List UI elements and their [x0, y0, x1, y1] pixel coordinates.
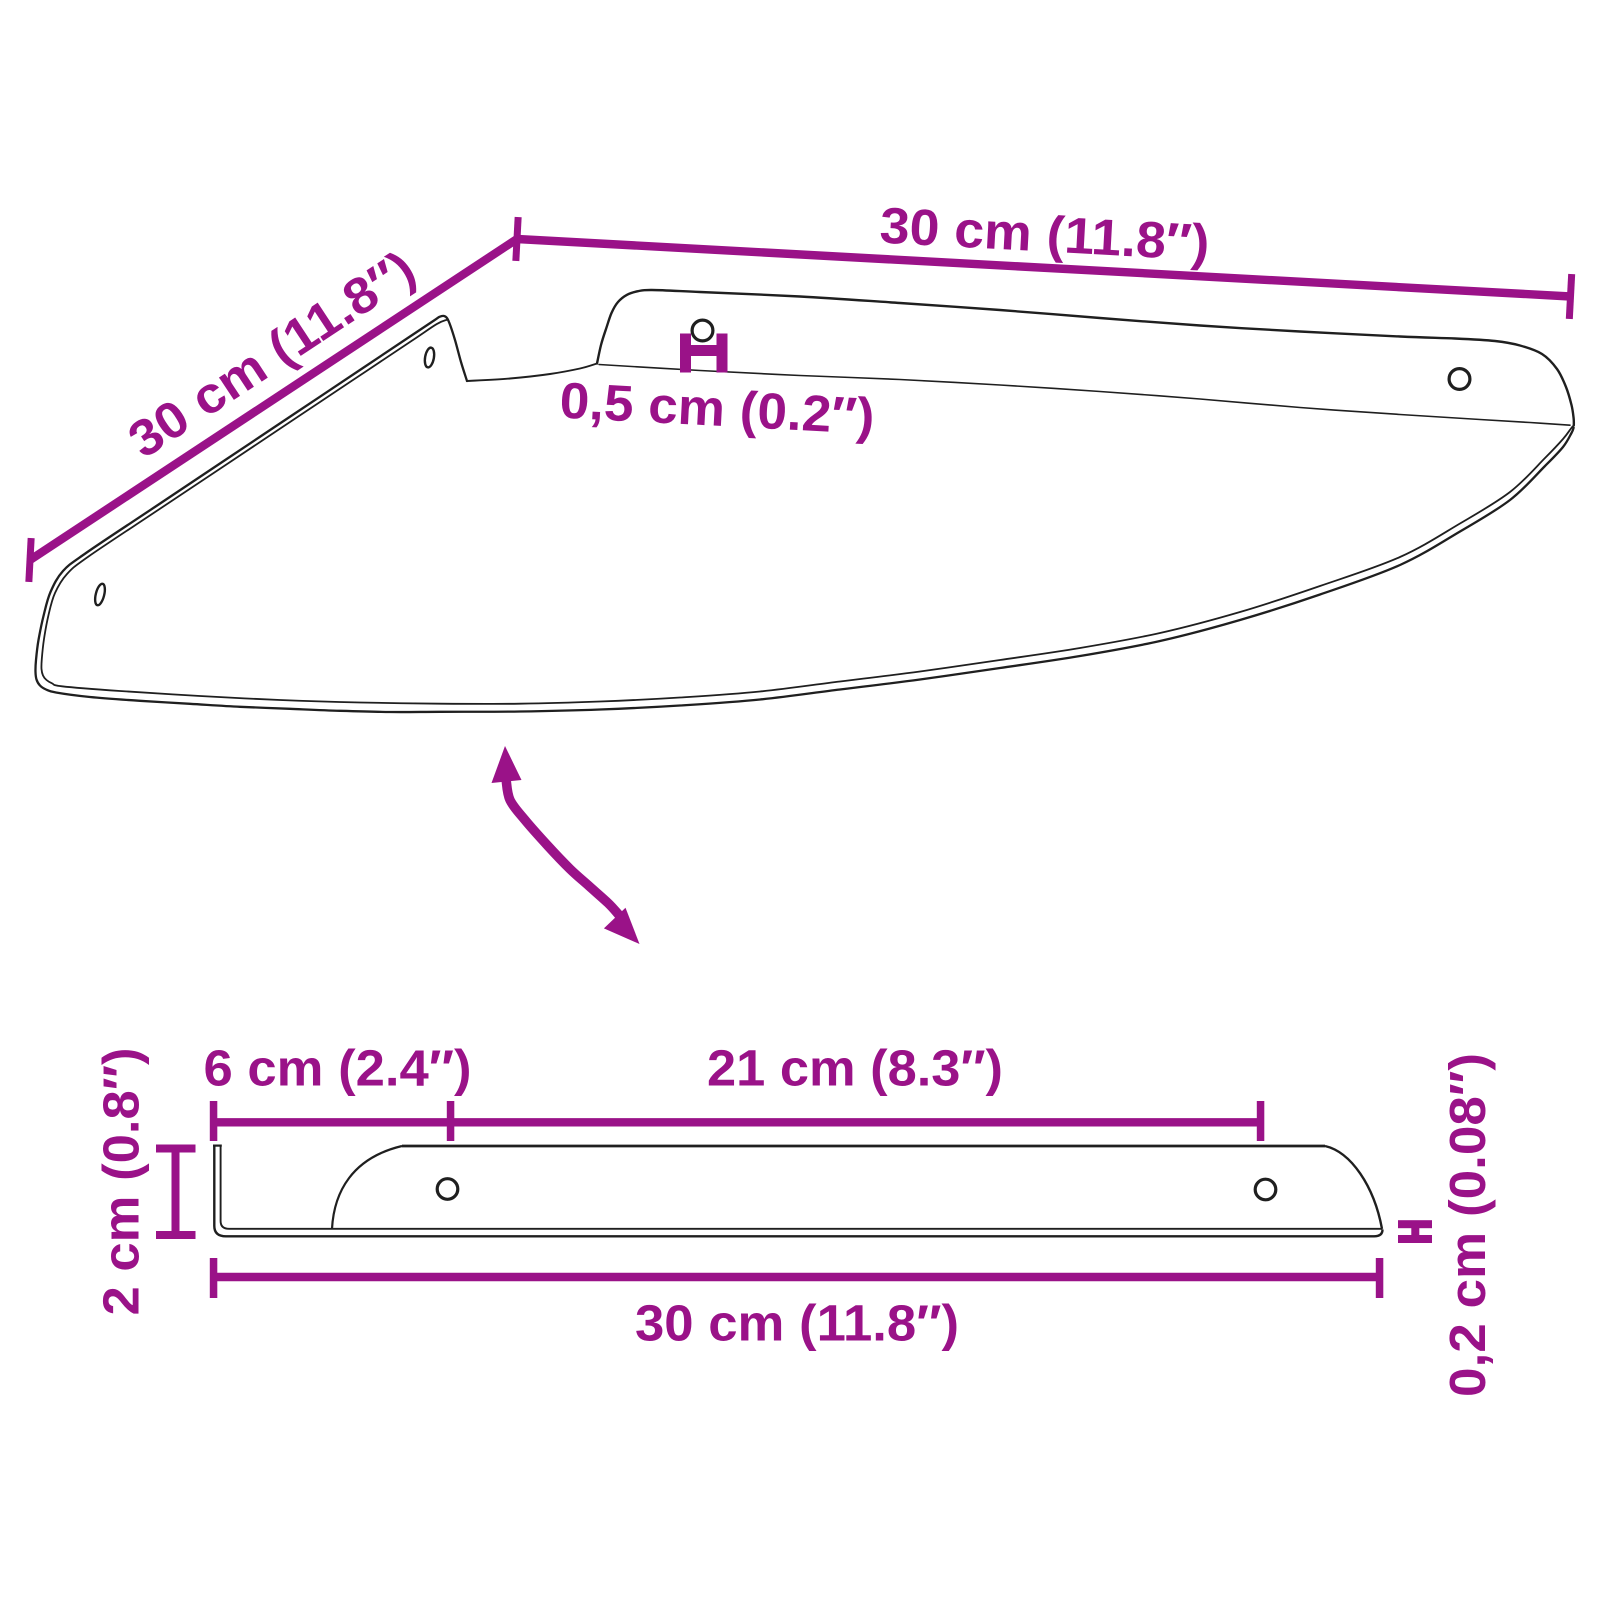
svg-text:2 cm (0.8″): 2 cm (0.8″) [93, 1048, 150, 1316]
svg-text:0,2 cm (0.08″): 0,2 cm (0.08″) [1439, 1053, 1496, 1397]
svg-text:6 cm (2.4″): 6 cm (2.4″) [204, 1040, 472, 1097]
svg-text:21 cm (8.3″): 21 cm (8.3″) [707, 1040, 1003, 1097]
svg-text:30 cm (11.8″): 30 cm (11.8″) [635, 1295, 959, 1352]
